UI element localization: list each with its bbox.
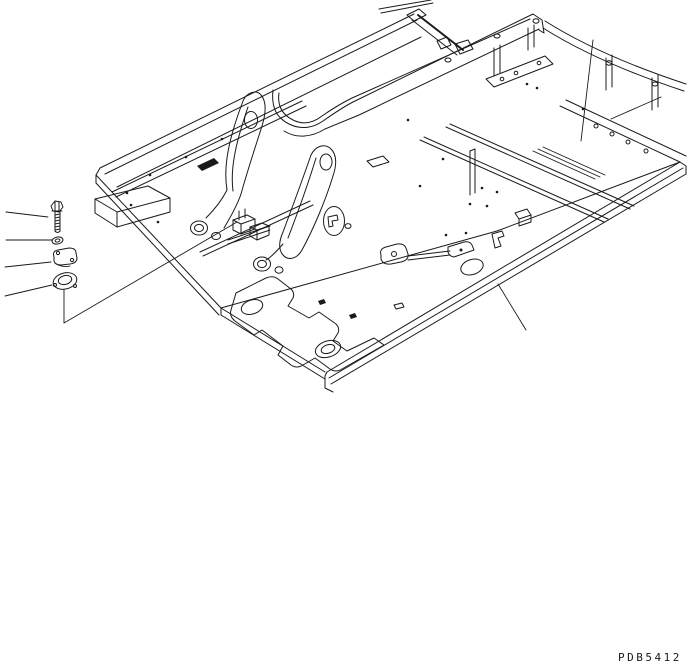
rail-hole (652, 82, 658, 86)
deck-front-rim (325, 162, 686, 392)
deck-cutout (231, 277, 385, 371)
deck-hole (239, 297, 264, 317)
boom-pin-boss (254, 257, 271, 271)
step-box (95, 186, 170, 212)
leader-front-deck (498, 284, 526, 330)
leader-ring (5, 285, 52, 296)
seal-ring-part (51, 270, 78, 291)
boom-cylinder-beam (418, 15, 463, 50)
boom-pin-boss (191, 221, 208, 235)
pad (381, 244, 409, 264)
front-deck (221, 162, 680, 379)
leader-top-right-1 (581, 40, 593, 141)
small-bracket (367, 156, 389, 167)
boom-mount-towers (191, 92, 352, 273)
clip (515, 209, 531, 219)
diagram-canvas: PDB5412 (0, 0, 694, 668)
callout-parts (51, 201, 79, 292)
main-frame-drawing (0, 0, 694, 668)
slot-plate (197, 158, 219, 171)
tower-hole (320, 154, 332, 170)
boom-foot-boss (313, 337, 343, 360)
leader-lines (5, 40, 661, 330)
hex-bolt-part (51, 201, 63, 233)
right-rail (543, 21, 686, 162)
rail-hole (494, 34, 500, 38)
rear-left-rail (96, 14, 421, 187)
leader-top-right-2 (611, 97, 661, 119)
leader-bolt (6, 212, 48, 217)
rail-hole (533, 19, 539, 23)
drawing-code: PDB5412 (618, 651, 694, 664)
leader-cover (5, 262, 51, 267)
l-bracket (492, 231, 504, 248)
right-side-frame (273, 14, 553, 136)
washer-part (51, 236, 63, 245)
leader-parts-to-frame (64, 222, 237, 323)
rail-hole (445, 58, 451, 62)
cover-plate-part (54, 248, 78, 267)
left-deck (95, 101, 306, 315)
deck-oval-hole (459, 256, 486, 277)
top-beams (379, 0, 473, 55)
